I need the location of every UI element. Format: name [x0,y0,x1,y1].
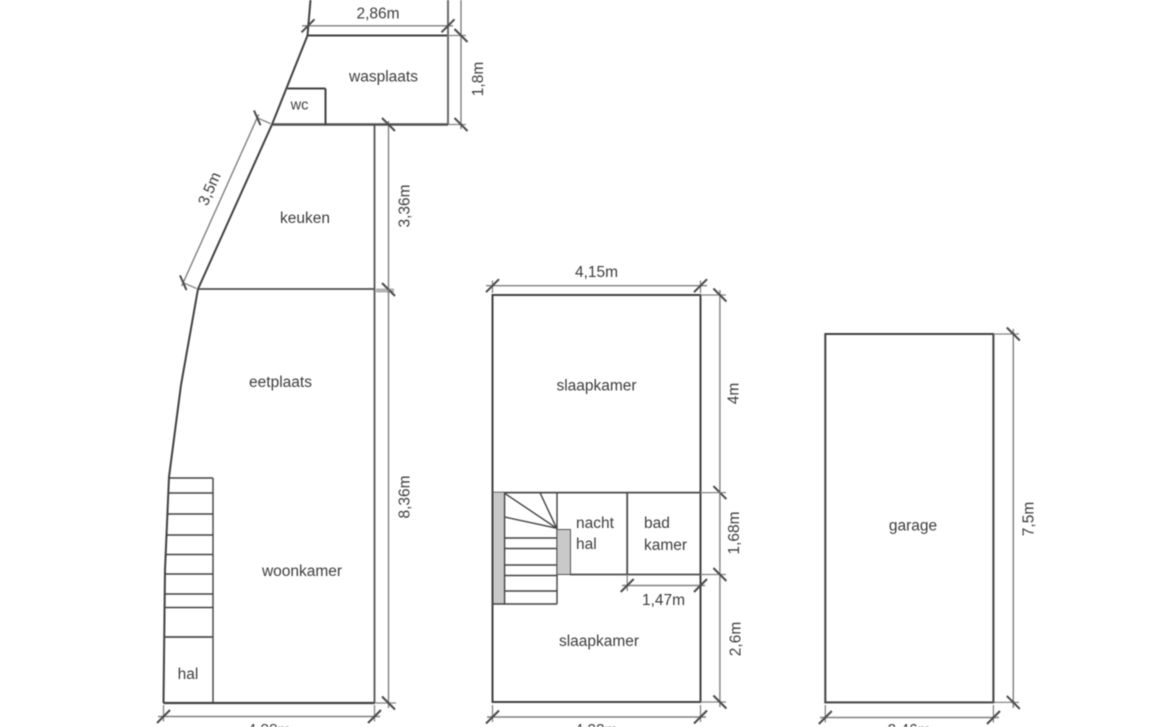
svg-text:2,46m: 2,46m [887,722,930,727]
svg-text:hal: hal [178,666,199,683]
svg-text:woonkamer: woonkamer [261,563,342,580]
svg-text:wasplaats: wasplaats [348,69,418,86]
svg-text:slaapkamer: slaapkamer [559,633,639,650]
svg-text:1,8m: 1,8m [470,62,487,96]
svg-text:3,36m: 3,36m [397,184,414,227]
svg-text:wc: wc [290,98,309,114]
svg-text:garage: garage [889,518,937,535]
svg-text:8,36m: 8,36m [397,475,414,518]
svg-text:hal: hal [576,536,597,553]
svg-text:2,86m: 2,86m [356,6,399,23]
svg-text:4m: 4m [726,383,743,405]
svg-text:1,68m: 1,68m [726,511,743,554]
svg-text:4,15m: 4,15m [575,264,618,281]
svg-text:eetplaats: eetplaats [249,374,312,391]
svg-text:2,6m: 2,6m [728,622,745,656]
svg-text:4,88m: 4,88m [247,722,290,727]
svg-text:4,22m: 4,22m [574,722,617,727]
svg-text:1,47m: 1,47m [642,592,685,609]
svg-text:keuken: keuken [280,210,330,227]
svg-text:kamer: kamer [644,537,687,554]
svg-text:slaapkamer: slaapkamer [556,378,636,395]
svg-text:bad: bad [644,515,670,532]
svg-text:7,5m: 7,5m [1021,502,1038,536]
svg-text:nacht: nacht [576,515,615,532]
